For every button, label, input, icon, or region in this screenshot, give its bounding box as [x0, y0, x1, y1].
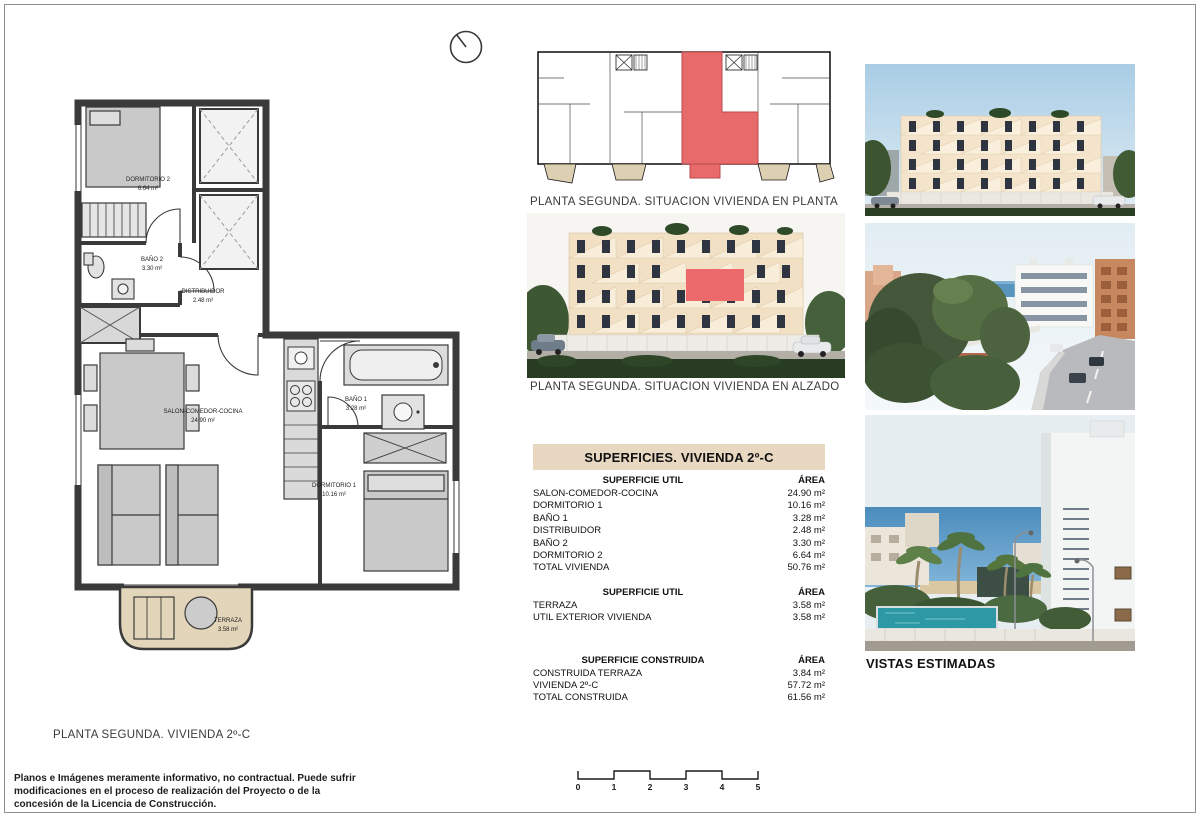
svg-text:DISTRIBUIDOR: DISTRIBUIDOR — [181, 289, 225, 295]
svg-text:3.58 m²: 3.58 m² — [218, 627, 238, 633]
svg-text:6.64 m²: 6.64 m² — [138, 186, 158, 192]
pool — [877, 607, 997, 629]
views-label: VISTAS ESTIMADAS — [866, 656, 995, 671]
table-row: DISTRIBUIDOR2.48 m² — [533, 525, 825, 537]
dining-set — [84, 339, 199, 449]
apartment-floor-plan: DORMITORIO 2 6.64 m² BAÑO 2 3.30 m² DIST… — [68, 95, 462, 653]
table-section-header: SUPERFICIE UTIL ÁREA — [533, 475, 825, 486]
situation-key-plan — [530, 42, 836, 188]
svg-text:3.30 m²: 3.30 m² — [142, 266, 162, 272]
table-section-header: SUPERFICIE CONSTRUIDA ÁREA — [533, 655, 825, 666]
table-row: DORMITORIO 110.16 m² — [533, 500, 825, 512]
bedroom1-furniture — [364, 471, 448, 571]
svg-text:10.16 m²: 10.16 m² — [322, 492, 346, 498]
svg-text:BAÑO 1: BAÑO 1 — [345, 396, 368, 403]
plan-sheet: DORMITORIO 2 6.64 m² BAÑO 2 3.30 m² DIST… — [0, 0, 1200, 817]
table-section-header: SUPERFICIE UTIL ÁREA — [533, 587, 825, 598]
surfaces-table-title: SUPERFICIES. VIVIENDA 2º-C — [533, 444, 825, 470]
svg-text:2.48 m²: 2.48 m² — [193, 298, 213, 304]
view-photo-street-sea — [865, 223, 1135, 410]
scale-labels: 0 1 2 3 4 5 — [576, 782, 761, 792]
north-indicator-icon — [446, 26, 486, 66]
elevation-image — [527, 213, 845, 378]
svg-text:24.90 m²: 24.90 m² — [191, 418, 215, 424]
view-photo-building-render — [865, 64, 1135, 216]
svg-text:TERRAZA: TERRAZA — [214, 618, 242, 624]
highlighted-unit-elevation — [686, 269, 744, 301]
surfaces-table: SUPERFICIES. VIVIENDA 2º-C SUPERFICIE UT… — [533, 444, 825, 705]
highlighted-unit-terrace — [690, 164, 720, 178]
sofas — [98, 465, 218, 565]
svg-text:0: 0 — [576, 782, 581, 792]
kitchen — [284, 339, 318, 499]
table-row: TERRAZA3.58 m² — [533, 600, 825, 612]
view-photo-sea-pool — [865, 415, 1135, 651]
elevation-caption: PLANTA SEGUNDA. SITUACION VIVIENDA EN AL… — [530, 381, 840, 393]
table-row: TOTAL CONSTRUIDA61.56 m² — [533, 692, 825, 704]
svg-text:2: 2 — [648, 782, 653, 792]
situation-plan-caption: PLANTA SEGUNDA. SITUACION VIVIENDA EN PL… — [530, 196, 838, 208]
svg-text:SALON-COMEDOR-COCINA: SALON-COMEDOR-COCINA — [163, 409, 242, 415]
keyplan-terraces — [544, 164, 834, 183]
table-row: BAÑO 23.30 m² — [533, 538, 825, 550]
scale-bar: 0 1 2 3 4 5 — [568, 762, 768, 794]
table-row: SALON-COMEDOR-COCINA24.90 m² — [533, 488, 825, 500]
disclaimer-text: Planos e Imágenes meramente informativo,… — [14, 772, 370, 812]
svg-text:BAÑO 2: BAÑO 2 — [141, 256, 164, 263]
table-row: TOTAL VIVIENDA50.76 m² — [533, 562, 825, 574]
floor-plan-caption: PLANTA SEGUNDA. VIVIENDA 2º-C — [53, 729, 250, 741]
wardrobe — [364, 433, 446, 463]
svg-text:1: 1 — [612, 782, 617, 792]
svg-text:3.28 m²: 3.28 m² — [346, 406, 366, 412]
table-row: CONSTRUIDA TERRAZA3.84 m² — [533, 668, 825, 680]
svg-text:3: 3 — [684, 782, 689, 792]
svg-text:DORMITORIO 1: DORMITORIO 1 — [312, 483, 357, 489]
svg-text:DORMITORIO 2: DORMITORIO 2 — [126, 177, 171, 183]
table-row: VIVIENDA 2º-C57.72 m² — [533, 680, 825, 692]
table-row: UTIL EXTERIOR VIVIENDA3.58 m² — [533, 612, 825, 624]
table-row: DORMITORIO 26.64 m² — [533, 550, 825, 562]
table-row: BAÑO 13.28 m² — [533, 513, 825, 525]
svg-text:5: 5 — [756, 782, 761, 792]
svg-text:4: 4 — [720, 782, 725, 792]
